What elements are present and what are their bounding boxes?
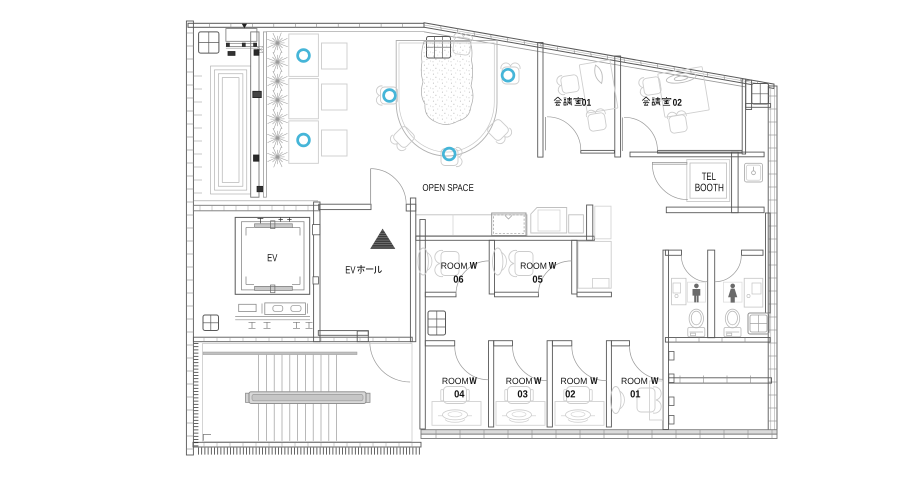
svg-text:W: W xyxy=(534,376,542,387)
svg-text:05: 05 xyxy=(532,275,543,286)
svg-text:01: 01 xyxy=(582,98,592,109)
svg-text:ROOM: ROOM xyxy=(621,376,648,386)
svg-text:ROOM: ROOM xyxy=(441,261,468,271)
svg-text:W: W xyxy=(549,261,557,272)
svg-text:EV: EV xyxy=(345,265,355,276)
svg-text:ROOM: ROOM xyxy=(560,376,587,386)
svg-text:OPEN SPACE: OPEN SPACE xyxy=(422,183,474,194)
svg-text:ROOM: ROOM xyxy=(520,261,547,271)
svg-text:06: 06 xyxy=(453,275,464,286)
svg-text:W: W xyxy=(469,376,477,387)
svg-text:03: 03 xyxy=(517,389,528,400)
svg-text:02: 02 xyxy=(673,98,683,109)
svg-text:EV: EV xyxy=(267,253,277,264)
svg-text:BOOTH: BOOTH xyxy=(695,182,724,194)
svg-text:W: W xyxy=(651,376,659,387)
svg-text:04: 04 xyxy=(454,389,465,400)
svg-text:W: W xyxy=(590,376,598,387)
svg-text:W: W xyxy=(470,261,478,272)
svg-text:ROOM: ROOM xyxy=(506,376,533,386)
svg-text:02: 02 xyxy=(565,389,576,400)
svg-text:ROOM: ROOM xyxy=(442,376,469,386)
svg-text:01: 01 xyxy=(630,389,641,400)
